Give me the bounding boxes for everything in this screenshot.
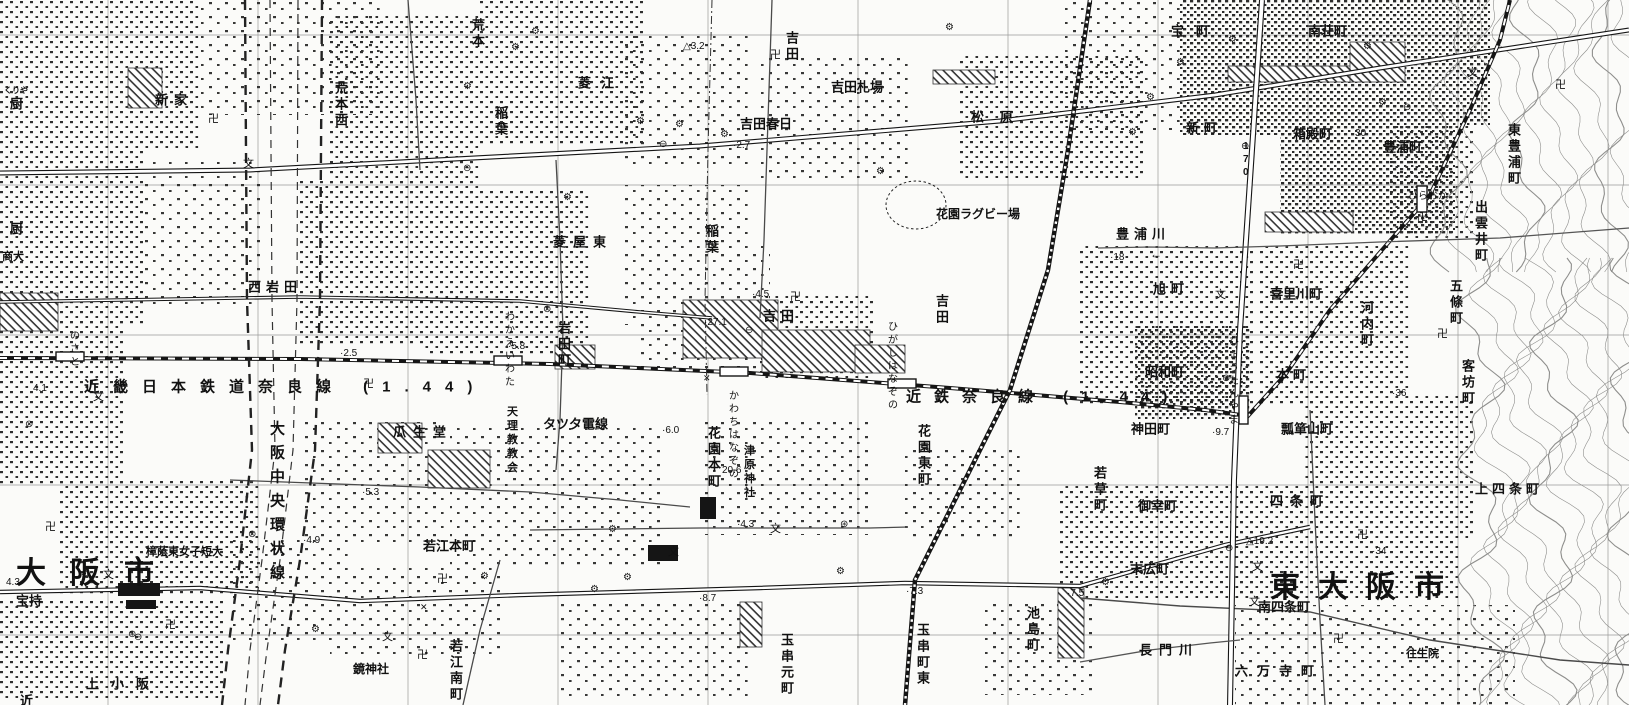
place-name-label: 若草町 — [1093, 466, 1107, 513]
place-name-label: 宝町 — [1171, 24, 1221, 39]
building-noise-zone — [560, 600, 750, 700]
hatch-area — [933, 70, 995, 84]
factory-icon: ⚙ — [531, 26, 540, 37]
place-name-label: 新町 — [1186, 121, 1222, 136]
place-name-label: 樟蔭東女子短大 — [145, 544, 223, 558]
place-name-label: 瓜生堂 — [393, 425, 453, 440]
place-name-label: 玉串町東 — [917, 623, 930, 686]
factory-icon: ⚙ — [1228, 34, 1237, 45]
factory-icon: ⚙ — [563, 192, 572, 203]
factory-icon: ⚙ — [1101, 577, 1110, 588]
place-name-label: 長門川 — [1139, 643, 1199, 658]
place-name-label: 花園ラグビー場 — [936, 206, 1020, 221]
building-noise-zone — [700, 420, 870, 535]
place-name-label: 御幸町 — [1137, 499, 1177, 514]
place-name-label: 豊浦川 — [1116, 227, 1170, 242]
temple-icon: 卍 — [790, 290, 801, 303]
place-name-label: 鏡神社 — [352, 661, 389, 676]
place-name-label: 往生院 — [1406, 646, 1439, 660]
building-noise-zone — [200, 0, 380, 115]
temple-icon: 卍 — [1555, 78, 1566, 91]
place-name-label: 津原神社 — [743, 443, 755, 499]
place-name-label: くりや — [4, 85, 28, 95]
temple-icon: 卍 — [45, 520, 56, 533]
spot-elevation: ·4.9 — [303, 535, 321, 546]
topo-map-canvas: 卍卍卍卍卍卍卍卍卍卍卍卍卍卍文文文文文文文文文文⚙⚙⚙⚙⚙⚙⚙⚙⚙⚙⚙⚙⚙⚙⚙⚙… — [0, 0, 1629, 705]
station-rect — [720, 367, 748, 376]
place-name-label: 松原 — [971, 110, 1029, 125]
contour-line — [1575, 258, 1624, 705]
spot-elevation: ·9.7 — [1212, 427, 1230, 438]
place-name-label: 稲葉 — [705, 224, 720, 255]
spot-elevation: △19.2 — [1246, 536, 1274, 547]
building-noise-zone — [145, 160, 265, 305]
place-name-label: 岩田町 — [557, 321, 571, 368]
place-name-label: 旭町 — [1152, 282, 1189, 297]
place-name-label: タツタ電線 — [543, 417, 609, 432]
place-name-label: 吉田札場 — [831, 80, 883, 95]
crossing-icon: ✕ — [703, 373, 711, 383]
place-name-label: 厨 — [10, 222, 23, 237]
place-name-label: 天理教教会 — [506, 405, 519, 474]
temple-icon: 卍 — [1293, 258, 1304, 271]
station-rect — [1239, 396, 1248, 424]
shrine-office-icon: ⊛ — [840, 519, 848, 530]
hatch-area — [762, 330, 870, 372]
crossing-icon: ✕ — [420, 602, 428, 612]
factory-icon: ⚙ — [1146, 92, 1155, 103]
building-noise-zone — [1235, 605, 1515, 705]
place-name-label: 本町 — [1276, 368, 1310, 383]
place-name-label: 喜里川町 — [1270, 287, 1322, 302]
place-name-label: 厨 — [10, 97, 23, 112]
factory-icon: ⚙ — [511, 42, 520, 53]
temple-icon: 卍 — [1437, 327, 1448, 340]
place-name-label: 170 — [1243, 141, 1249, 178]
flow-arrow-icon: ← — [1150, 247, 1162, 261]
railway-name-label: 大阪中央環状線 — [270, 420, 286, 582]
hatch-area — [428, 450, 490, 488]
school-icon: 文 — [1252, 559, 1263, 573]
place-name-label: 出雲井町 — [1475, 200, 1488, 263]
place-name-label: 若江南町 — [449, 639, 463, 702]
place-name-label: 荒本 — [471, 18, 485, 49]
public-office-icon: ⊖ — [1225, 543, 1233, 554]
school-icon: 文 — [1215, 287, 1226, 301]
place-name-label: 南荘町 — [1308, 24, 1347, 39]
factory-icon: ⚙ — [945, 22, 954, 33]
temple-icon: 卍 — [1417, 210, 1428, 223]
place-name-label: 東豊浦町 — [1508, 123, 1521, 186]
spot-elevation: ·5.8 — [508, 341, 526, 352]
school-icon: 文 — [668, 544, 679, 558]
factory-icon: ⚙ — [590, 584, 599, 595]
building-noise-zone — [330, 565, 500, 660]
rugby-stadium-outline — [886, 181, 946, 229]
spot-elevation: ·7.5 — [1067, 588, 1085, 599]
place-name-label: 稲葉 — [494, 106, 509, 137]
factory-icon: ⚙ — [1378, 97, 1387, 108]
spot-elevation: ·2.5 — [340, 348, 358, 359]
topo-map-sheet: 卍卍卍卍卍卍卍卍卍卍卍卍卍卍文文文文文文文文文文⚙⚙⚙⚙⚙⚙⚙⚙⚙⚙⚙⚙⚙⚙⚙⚙… — [0, 0, 1629, 705]
factory-icon: ⚙ — [636, 116, 645, 127]
place-name-label: 菱江 — [578, 76, 624, 91]
station-name-label: ひがしはなぞの — [888, 322, 898, 411]
place-name-label: 箱殿町 — [1293, 127, 1332, 142]
public-office-icon: ⊖ — [463, 163, 471, 174]
spot-elevation: ·27.1 — [704, 317, 727, 328]
place-name-label: 新家 — [155, 93, 193, 108]
hatch-area — [0, 293, 58, 331]
station-name-label: のさと — [70, 331, 80, 368]
spot-elevation: ·36 — [1392, 388, 1407, 399]
factory-icon: ⚙ — [480, 571, 489, 582]
school-icon: 文 — [1467, 65, 1478, 79]
place-name-label: 河内町 — [1361, 301, 1374, 348]
factory-icon: ⚙ — [876, 166, 885, 177]
railway-name-label: 近畿日本鉄道奈良線 (1.44) — [84, 378, 486, 396]
place-name-label: 上小阪 — [86, 677, 161, 692]
place-name-label: 若江本町 — [422, 539, 475, 554]
spot-elevation: 4.3 — [6, 577, 20, 588]
contour-line — [1592, 0, 1628, 272]
factory-icon: ⚙ — [1176, 57, 1185, 68]
place-name-label: 玉串元町 — [781, 633, 794, 696]
spot-elevation: ·34 — [1372, 546, 1387, 557]
building-block — [700, 497, 716, 519]
factory-icon: ⚙ — [675, 119, 684, 130]
place-name-label: 昭和町 — [1145, 365, 1184, 380]
factory-icon: ⚙ — [623, 572, 632, 583]
temple-icon: 卍 — [1333, 632, 1344, 645]
spot-elevation: △3.2 — [683, 41, 705, 52]
spot-elevation: ·4.3 — [737, 519, 755, 530]
place-name-label: 五條町 — [1450, 279, 1463, 326]
spot-elevation: 30 — [1355, 128, 1367, 139]
city-name-label: 大阪市 — [16, 556, 178, 590]
factory-icon: ⚙ — [1363, 41, 1372, 52]
place-name-label: 南四条町 — [1258, 600, 1310, 615]
railway-name-label: 近鉄奈良線 (1.44) — [906, 388, 1180, 406]
temple-icon: 卍 — [770, 48, 781, 61]
temple-icon: 卍 — [208, 112, 219, 125]
place-name-label: 荒本西 — [334, 81, 348, 128]
temple-icon: 卍 — [417, 648, 428, 661]
place-name-label: 客坊町 — [1462, 359, 1476, 406]
spot-elevation: 20.6 — [722, 465, 742, 476]
temple-icon: 卍 — [437, 572, 448, 585]
place-name-label: 神田町 — [1131, 422, 1170, 437]
building-noise-zone — [450, 425, 660, 565]
hatch-area — [740, 602, 762, 647]
temple-icon: 卍 — [1357, 528, 1368, 541]
place-name-label: 西岩田 — [248, 280, 302, 295]
factory-icon: ⚙ — [311, 624, 320, 635]
hatch-area — [1265, 212, 1353, 232]
police-icon: ⊗ — [543, 304, 551, 315]
public-office-icon: ⊖ — [745, 325, 753, 336]
factory-icon: ⚙ — [463, 81, 472, 92]
public-office-icon: ⊖ — [659, 139, 667, 150]
contour-line — [1607, 258, 1629, 705]
station-name-label: ひらおか — [1408, 190, 1448, 202]
spot-elevation: ·2.7 — [733, 140, 751, 151]
shrine-office-icon: ⊛ — [128, 629, 136, 640]
place-name-label: 池島町 — [1027, 606, 1040, 653]
building-noise-zone — [0, 320, 125, 485]
place-name-label: 四条町 — [1270, 494, 1330, 509]
place-name-label: 菱屋東 — [553, 235, 613, 250]
factory-icon: ⚙ — [608, 524, 617, 535]
place-name-label: 花園東町 — [918, 424, 931, 487]
spot-elevation: ·6.0 — [662, 425, 680, 436]
place-name-label: 近 — [20, 694, 33, 705]
spot-elevation: ·7.3 — [906, 586, 924, 597]
place-name-label: 六万寺町 — [1235, 664, 1323, 679]
police-icon: ⊗ — [248, 529, 256, 540]
public-office-icon: ⊖ — [1403, 102, 1411, 113]
contour-line — [1559, 258, 1610, 705]
place-name-label: 吉田 — [936, 294, 949, 325]
place-name-label: 瓢箪山町 — [1281, 422, 1333, 437]
place-name-label: 上四条町 — [1475, 482, 1543, 497]
factory-icon: ⚙ — [836, 566, 845, 577]
police-icon: ⊗ — [25, 419, 33, 430]
station-name-label: ひょうたんやま — [1229, 337, 1239, 426]
factory-icon: ⚙ — [1128, 127, 1137, 138]
temple-icon: 卍 — [165, 618, 176, 631]
place-name-label: 吉田 — [763, 309, 799, 324]
spot-elevation: ·18 — [1110, 252, 1125, 263]
building-block — [126, 600, 156, 609]
building-noise-zone — [0, 0, 200, 150]
hatch-area — [1350, 42, 1405, 82]
spot-elevation: ·4.5 — [752, 289, 770, 300]
place-name-label: 宝持 — [16, 594, 42, 609]
school-icon: 文 — [770, 521, 781, 535]
school-icon: 文 — [382, 629, 393, 643]
spot-elevation: ·5.3 — [362, 487, 380, 498]
building-noise-zone — [300, 180, 425, 345]
place-name-label: 吉田 — [786, 31, 799, 62]
spot-elevation: ·8.7 — [699, 593, 717, 604]
spot-elevation: 4.1 — [33, 383, 47, 394]
school-icon: 文 — [243, 156, 254, 170]
factory-icon: ⚙ — [720, 129, 729, 140]
place-name-label: 吉田春日 — [740, 117, 792, 132]
place-name-label: 末広町 — [1129, 562, 1169, 577]
place-name-label: 花園本町 — [708, 426, 721, 489]
place-name-label: 豊浦町 — [1383, 140, 1422, 155]
place-name-label: 商大 — [2, 249, 24, 263]
